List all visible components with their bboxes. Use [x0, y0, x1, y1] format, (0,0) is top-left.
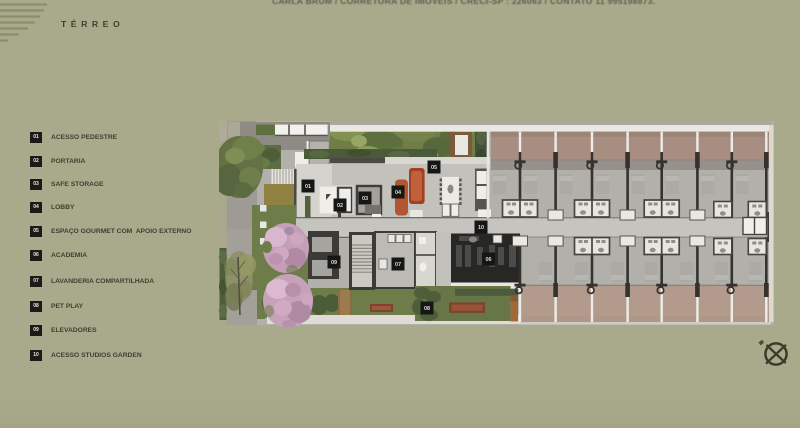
svg-text:05: 05 [431, 165, 437, 171]
svg-text:09: 09 [331, 260, 337, 266]
svg-text:07: 07 [395, 262, 401, 268]
svg-text:04: 04 [395, 190, 402, 196]
svg-text:10: 10 [478, 225, 484, 231]
svg-text:08: 08 [424, 306, 430, 312]
svg-text:06: 06 [485, 257, 491, 263]
svg-text:03: 03 [362, 196, 368, 202]
svg-text:02: 02 [337, 203, 343, 209]
svg-text:01: 01 [305, 184, 311, 190]
